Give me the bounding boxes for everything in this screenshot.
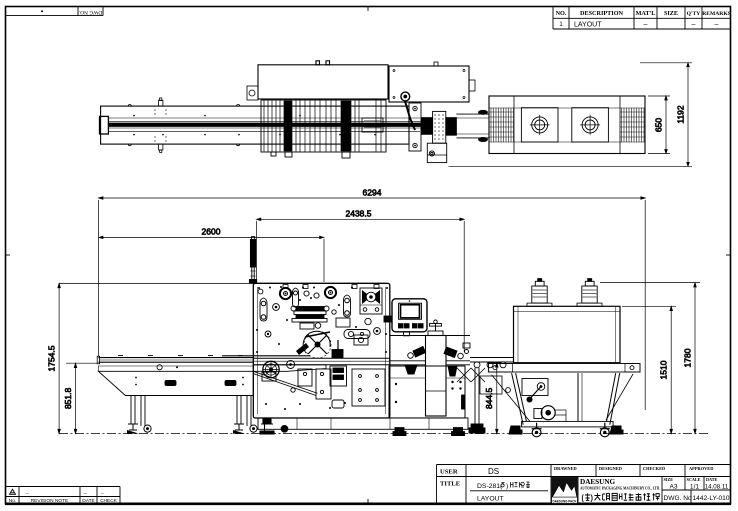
svg-text:DAESUNG: DAESUNG bbox=[580, 478, 616, 486]
svg-text:844.5: 844.5 bbox=[484, 387, 494, 409]
svg-text:REMARKS: REMARKS bbox=[702, 11, 731, 17]
svg-text:Q'TY: Q'TY bbox=[687, 11, 701, 17]
svg-text:LAYOUT: LAYOUT bbox=[574, 22, 602, 29]
svg-text:DESIGNED: DESIGNED bbox=[599, 466, 622, 471]
svg-text:No.: No. bbox=[9, 498, 16, 504]
svg-text:–: – bbox=[101, 492, 104, 497]
svg-text:DESCRIPTION: DESCRIPTION bbox=[580, 10, 624, 17]
svg-text:–: – bbox=[26, 492, 29, 497]
svg-text:SIZE: SIZE bbox=[664, 477, 674, 482]
svg-text:1192: 1192 bbox=[676, 105, 686, 124]
svg-text:LAYOUT: LAYOUT bbox=[477, 496, 504, 503]
svg-text:NO.: NO. bbox=[556, 10, 567, 17]
svg-text:DS-281(: DS-281( bbox=[477, 483, 503, 490]
svg-text:MAT'L: MAT'L bbox=[636, 10, 656, 17]
svg-text:): ) bbox=[506, 483, 508, 490]
svg-text:1754.5: 1754.5 bbox=[47, 345, 57, 371]
svg-text:650: 650 bbox=[654, 118, 664, 132]
svg-text:1510: 1510 bbox=[659, 360, 669, 379]
svg-text:USER: USER bbox=[440, 469, 458, 476]
svg-text:TITLE: TITLE bbox=[440, 481, 461, 488]
svg-text:DS: DS bbox=[488, 467, 499, 476]
svg-text:–: – bbox=[692, 21, 696, 28]
svg-text:CHECKED: CHECKED bbox=[643, 466, 665, 471]
svg-text:DATE: DATE bbox=[82, 498, 94, 504]
svg-text:2438.5: 2438.5 bbox=[346, 209, 372, 219]
svg-text:1/1: 1/1 bbox=[690, 484, 699, 491]
svg-text:–: – bbox=[715, 21, 719, 28]
svg-text:CHECK: CHECK bbox=[100, 498, 118, 504]
svg-text:6294: 6294 bbox=[363, 188, 382, 198]
svg-text:14.08.11: 14.08.11 bbox=[705, 483, 729, 490]
svg-text:DWG NO.: DWG NO. bbox=[79, 9, 102, 15]
svg-text:DRAWNED: DRAWNED bbox=[554, 466, 577, 471]
svg-text:SIZE: SIZE bbox=[664, 10, 678, 17]
svg-text:DAESUNG PACK: DAESUNG PACK bbox=[553, 500, 577, 504]
svg-text:–: – bbox=[84, 492, 87, 497]
svg-text:AUTOMATIC PACKAGING MACHINERY: AUTOMATIC PACKAGING MACHINERY CO., LTD. bbox=[580, 486, 660, 490]
svg-text:DATE: DATE bbox=[706, 477, 718, 482]
svg-text:REVISION NOTE: REVISION NOTE bbox=[31, 498, 69, 504]
svg-text:1442-LY-010: 1442-LY-010 bbox=[693, 495, 730, 502]
svg-text:DWG. No: DWG. No bbox=[664, 495, 693, 502]
svg-text:2600: 2600 bbox=[202, 227, 221, 237]
svg-text:A3: A3 bbox=[669, 484, 677, 491]
svg-text:APPROVED: APPROVED bbox=[689, 466, 713, 471]
svg-text:SCALE: SCALE bbox=[687, 477, 701, 482]
svg-text:–: – bbox=[644, 21, 648, 28]
svg-text:1780: 1780 bbox=[682, 348, 692, 367]
svg-text:851.8: 851.8 bbox=[63, 387, 73, 409]
